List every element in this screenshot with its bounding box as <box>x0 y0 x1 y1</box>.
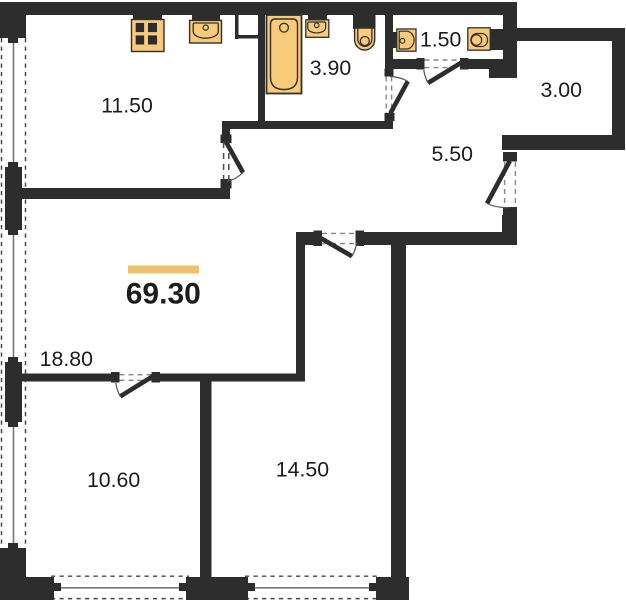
svg-text:14.50: 14.50 <box>276 457 329 481</box>
svg-text:5.50: 5.50 <box>431 142 473 166</box>
svg-text:18.80: 18.80 <box>40 347 93 371</box>
svg-text:69.30: 69.30 <box>126 278 201 311</box>
svg-text:3.90: 3.90 <box>310 56 352 80</box>
svg-text:10.60: 10.60 <box>87 468 140 492</box>
svg-text:11.50: 11.50 <box>101 93 153 117</box>
svg-text:3.00: 3.00 <box>540 78 582 102</box>
svg-text:1.50: 1.50 <box>420 28 462 52</box>
